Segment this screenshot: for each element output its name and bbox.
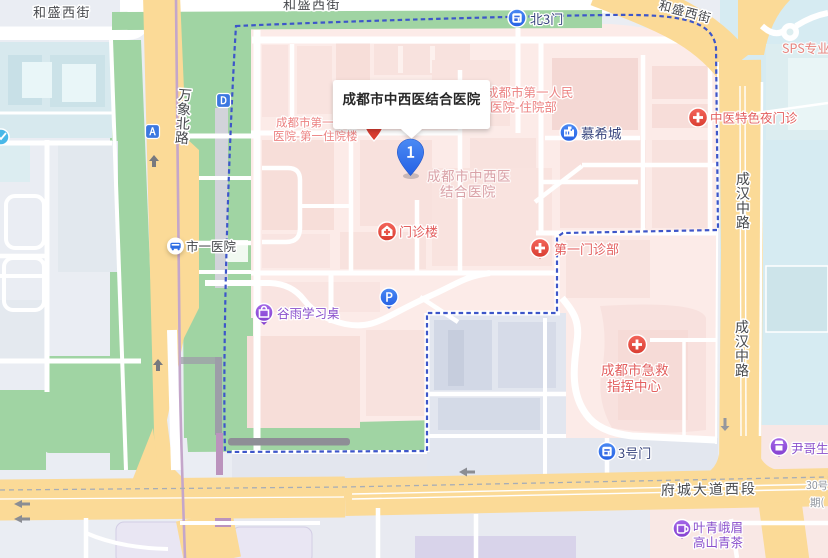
svg-text:医院-第一住院楼: 医院-第一住院楼 [273,128,358,144]
svg-text:成汉中路: 成汉中路 [736,169,750,233]
svg-text:府城大道西段: 府城大道西段 [661,478,757,500]
svg-text:高山青茶: 高山青茶 [693,532,744,551]
svg-text:1: 1 [406,141,415,163]
svg-text:中医特色夜门诊: 中医特色夜门诊 [710,108,798,127]
svg-text:北3门: 北3门 [530,9,563,28]
svg-text:指挥中心: 指挥中心 [607,375,661,395]
svg-text:尹哥生鲜: 尹哥生鲜 [791,438,828,457]
svg-text:A: A [148,123,156,138]
svg-text:成汉中路: 成汉中路 [735,317,749,381]
svg-text:门诊楼: 门诊楼 [399,222,438,241]
svg-text:结合医院: 结合医院 [440,181,496,201]
svg-text:期(: 期( [810,495,824,510]
svg-text:慕希城: 慕希城 [581,123,622,143]
svg-text:成都市中西医结合医院: 成都市中西医结合医院 [343,88,481,108]
svg-text:30号: 30号 [806,478,828,493]
svg-text:市一医院: 市一医院 [186,236,237,255]
svg-text:3号门: 3号门 [618,443,651,462]
svg-text:和盛西街: 和盛西街 [33,2,91,21]
svg-text:第一门诊部: 第一门诊部 [554,239,619,258]
svg-text:D: D [220,92,227,107]
svg-text:P: P [385,289,393,306]
svg-text:和盛西街: 和盛西街 [283,0,341,13]
svg-text:谷雨学习桌: 谷雨学习桌 [277,303,340,322]
svg-text:医院-住院部: 医院-住院部 [490,97,557,116]
